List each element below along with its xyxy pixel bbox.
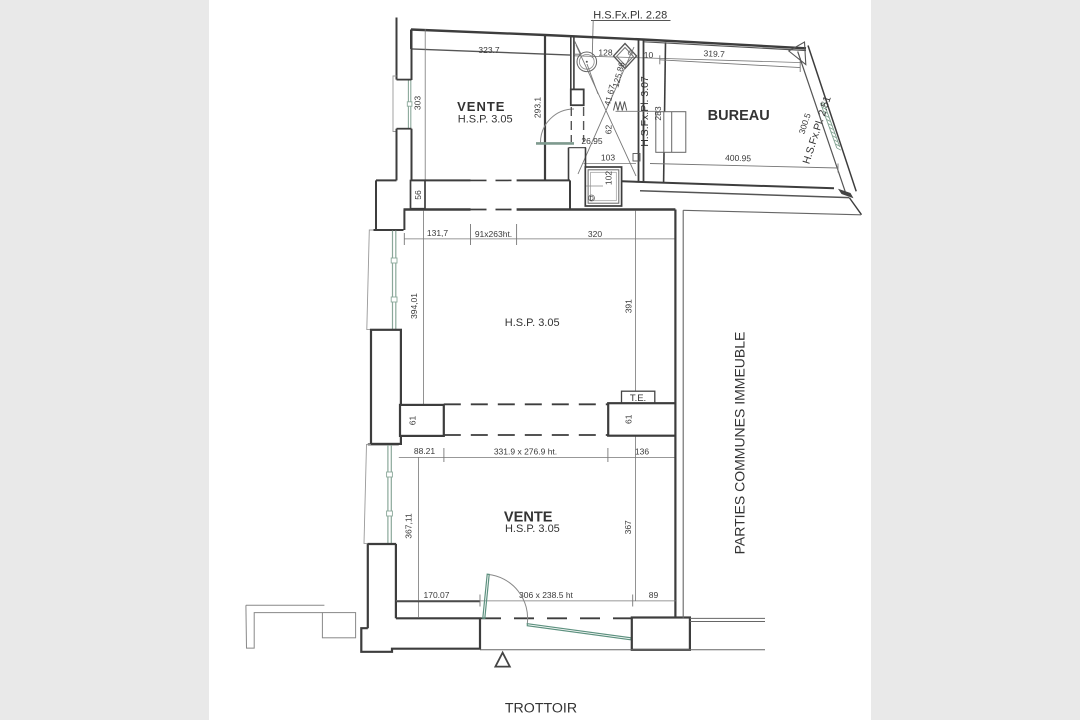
svg-text:88.21: 88.21 bbox=[414, 446, 436, 456]
svg-text:H.S.P. 3.05: H.S.P. 3.05 bbox=[458, 113, 513, 125]
svg-text:306 x 238.5 ht: 306 x 238.5 ht bbox=[519, 590, 574, 600]
svg-text:128: 128 bbox=[598, 48, 612, 58]
svg-text:391: 391 bbox=[623, 299, 633, 313]
svg-text:323.7: 323.7 bbox=[478, 45, 500, 55]
svg-text:56: 56 bbox=[413, 190, 423, 200]
svg-text:VENTE: VENTE bbox=[457, 99, 505, 114]
svg-text:320: 320 bbox=[588, 229, 602, 239]
svg-text:TROTTOIR: TROTTOIR bbox=[505, 700, 577, 716]
svg-text:H.S.Fx.Pl. 3.07: H.S.Fx.Pl. 3.07 bbox=[639, 76, 651, 147]
svg-text:131,7: 131,7 bbox=[427, 228, 449, 238]
svg-text:103: 103 bbox=[601, 153, 615, 163]
svg-text:H.S.P. 3.05: H.S.P. 3.05 bbox=[505, 523, 560, 535]
svg-text:170.07: 170.07 bbox=[424, 590, 450, 600]
svg-text:293.1: 293.1 bbox=[532, 97, 542, 119]
svg-text:62: 62 bbox=[604, 125, 614, 135]
svg-text:367: 367 bbox=[623, 520, 633, 534]
svg-text:26.95: 26.95 bbox=[581, 136, 603, 146]
svg-text:136: 136 bbox=[635, 447, 649, 457]
svg-text:319.7: 319.7 bbox=[703, 48, 725, 59]
svg-text:283: 283 bbox=[653, 106, 663, 120]
svg-text:331.9 x 276.9 ht.: 331.9 x 276.9 ht. bbox=[494, 447, 557, 457]
svg-text:303: 303 bbox=[413, 96, 423, 110]
svg-text:10: 10 bbox=[644, 50, 654, 60]
svg-text:394,01: 394,01 bbox=[409, 293, 419, 319]
svg-text:102: 102 bbox=[604, 171, 614, 185]
svg-text:BUREAU: BUREAU bbox=[708, 108, 770, 124]
svg-text:400.95: 400.95 bbox=[725, 153, 752, 164]
svg-text:D: D bbox=[589, 196, 594, 202]
svg-text:89: 89 bbox=[649, 590, 659, 600]
svg-text:61: 61 bbox=[408, 416, 418, 426]
svg-text:PARTIES COMMUNES IMMEUBLE: PARTIES COMMUNES IMMEUBLE bbox=[732, 332, 748, 555]
svg-text:H.S.Fx.Pl. 2.28: H.S.Fx.Pl. 2.28 bbox=[593, 9, 667, 21]
svg-text:61: 61 bbox=[623, 414, 633, 424]
svg-text:91x263ht.: 91x263ht. bbox=[475, 229, 512, 239]
svg-text:H.S.P. 3.05: H.S.P. 3.05 bbox=[505, 317, 560, 329]
svg-text:367,11: 367,11 bbox=[403, 513, 413, 539]
